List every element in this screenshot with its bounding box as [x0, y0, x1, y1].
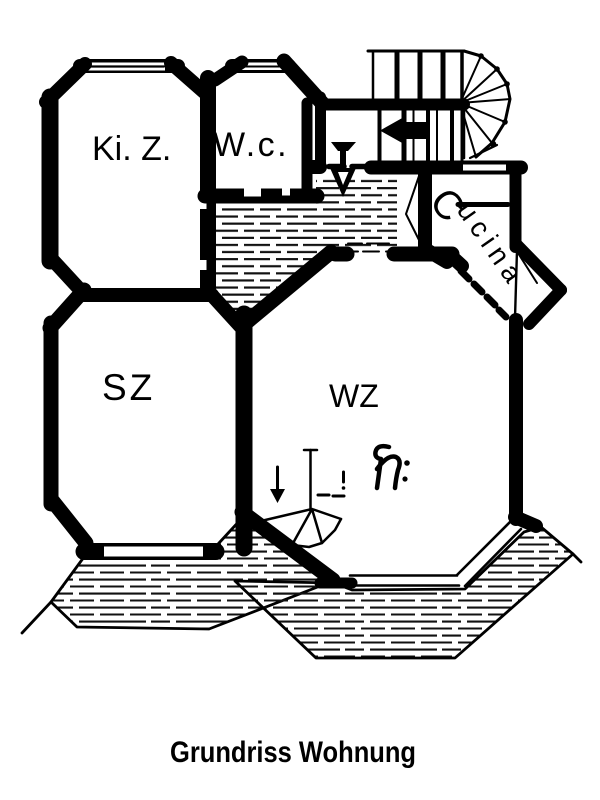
svg-text:SZ: SZ [102, 367, 155, 408]
svg-text:W.c.: W.c. [213, 126, 289, 164]
svg-text:Grundriss Wohnung: Grundriss Wohnung [170, 736, 416, 769]
svg-text:Ki. Z.: Ki. Z. [92, 130, 171, 168]
svg-text:WZ: WZ [329, 378, 379, 414]
